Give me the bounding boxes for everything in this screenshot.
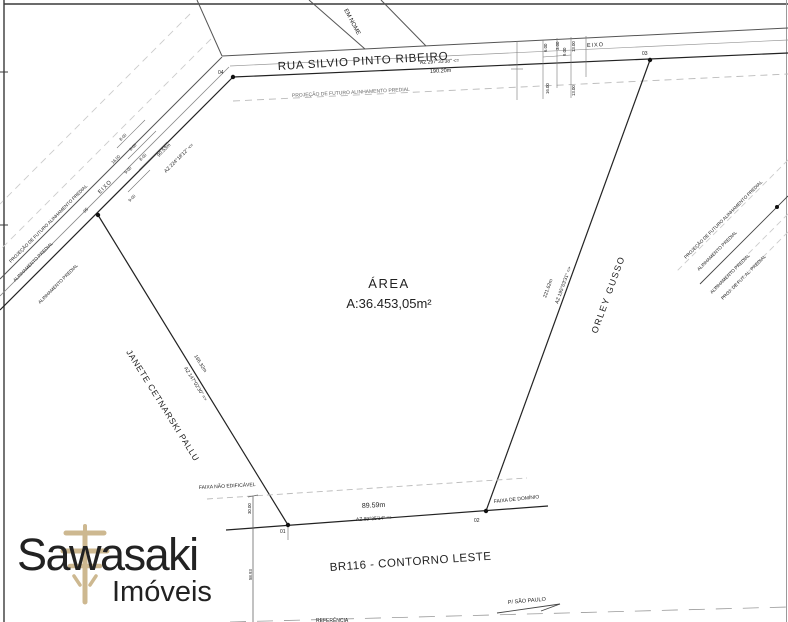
logo-company-segment: Imóveis bbox=[112, 576, 212, 608]
point-label-03: 03 bbox=[642, 51, 648, 57]
projection-alignment-top-label: PROJEÇÃO DE FUTURO ALINHAMENTO PREDIAL bbox=[292, 86, 410, 99]
svg-text:8.00: 8.00 bbox=[118, 132, 128, 142]
left-alignment-labels: PROJEÇÃO DE FUTURO ALINHAMENTO PREDIAL A… bbox=[7, 183, 88, 305]
top-road-lines bbox=[197, 0, 788, 101]
svg-text:6.00: 6.00 bbox=[543, 43, 548, 52]
direction-sao-paulo-label: P/ SÃO PAULO bbox=[508, 596, 547, 606]
area-title: ÁREA bbox=[368, 276, 409, 291]
svg-text:30.00: 30.00 bbox=[247, 503, 252, 514]
left-road-axis-label: EIXO bbox=[97, 179, 113, 195]
point-label-04: 04 bbox=[218, 70, 224, 76]
left-road-lines bbox=[0, 14, 233, 310]
svg-text:13.00: 13.00 bbox=[571, 85, 576, 96]
street-name-br116: BR116 - CONTORNO LESTE bbox=[329, 551, 491, 574]
owner-orley-label: ORLEY GUSSO bbox=[589, 254, 626, 334]
svg-text:9.00: 9.00 bbox=[562, 47, 567, 56]
right-alignment-labels: PROJEÇÃO DE FUTURO ALINHAMENTO PREDIAL A… bbox=[682, 179, 767, 301]
svg-text:13.00: 13.00 bbox=[571, 41, 576, 52]
top-boundary-length: 190.20m bbox=[430, 68, 452, 75]
svg-text:58.93: 58.93 bbox=[248, 569, 253, 580]
area-value: A:36.453,05m² bbox=[346, 296, 432, 311]
point-label-01: 01 bbox=[280, 529, 286, 535]
svg-text:PROJEÇÃO DE FUTURO ALINHAMENTO: PROJEÇÃO DE FUTURO ALINHAMENTO PREDIAL bbox=[7, 183, 88, 264]
svg-text:3.00: 3.00 bbox=[555, 41, 560, 50]
point-label-02: 02 bbox=[474, 518, 480, 524]
plot-boundaries bbox=[98, 60, 650, 530]
top-road-axis-label: EIXO bbox=[587, 42, 604, 49]
logo-company-name: Sawasaki bbox=[17, 529, 198, 580]
faixa-de-dominio-label: FAIXA DE DOMÍNIO bbox=[493, 493, 539, 505]
svg-text:16.00: 16.00 bbox=[545, 83, 550, 94]
svg-text:ALINHAMENTO PREDIAL: ALINHAMENTO PREDIAL bbox=[37, 263, 79, 305]
bottom-boundary-azimuth: AZ 89°35'14" => bbox=[356, 515, 393, 523]
right-boundary-length: 221.62m bbox=[542, 278, 554, 298]
svg-text:9.00: 9.00 bbox=[127, 193, 137, 203]
survey-drawing: RUA SILVIO PINTO RIBEIRO AZ 297°33'38" <… bbox=[0, 0, 788, 622]
right-corner-lines bbox=[676, 160, 788, 298]
referencia-label: REFERÊNCIA bbox=[316, 616, 349, 622]
svg-text:8.00: 8.00 bbox=[138, 152, 148, 162]
left-lower-boundary-length: 166.32m bbox=[192, 354, 207, 374]
survey-drawing-page: RUA SILVIO PINTO RIBEIRO AZ 297°33'38" <… bbox=[0, 0, 788, 622]
svg-text:9.00: 9.00 bbox=[123, 165, 133, 175]
bottom-boundary-length: 89.59m bbox=[362, 502, 386, 510]
left-upper-boundary-length: 90.53m bbox=[156, 142, 172, 158]
bottom-dimension-labels: 30.00 58.93 bbox=[247, 503, 253, 580]
top-boundary-azimuth: AZ 297°33'38" <= bbox=[420, 58, 460, 66]
faixa-nao-edificavel-label: FAIXA NÃO EDIFICÁVEL bbox=[199, 481, 256, 491]
